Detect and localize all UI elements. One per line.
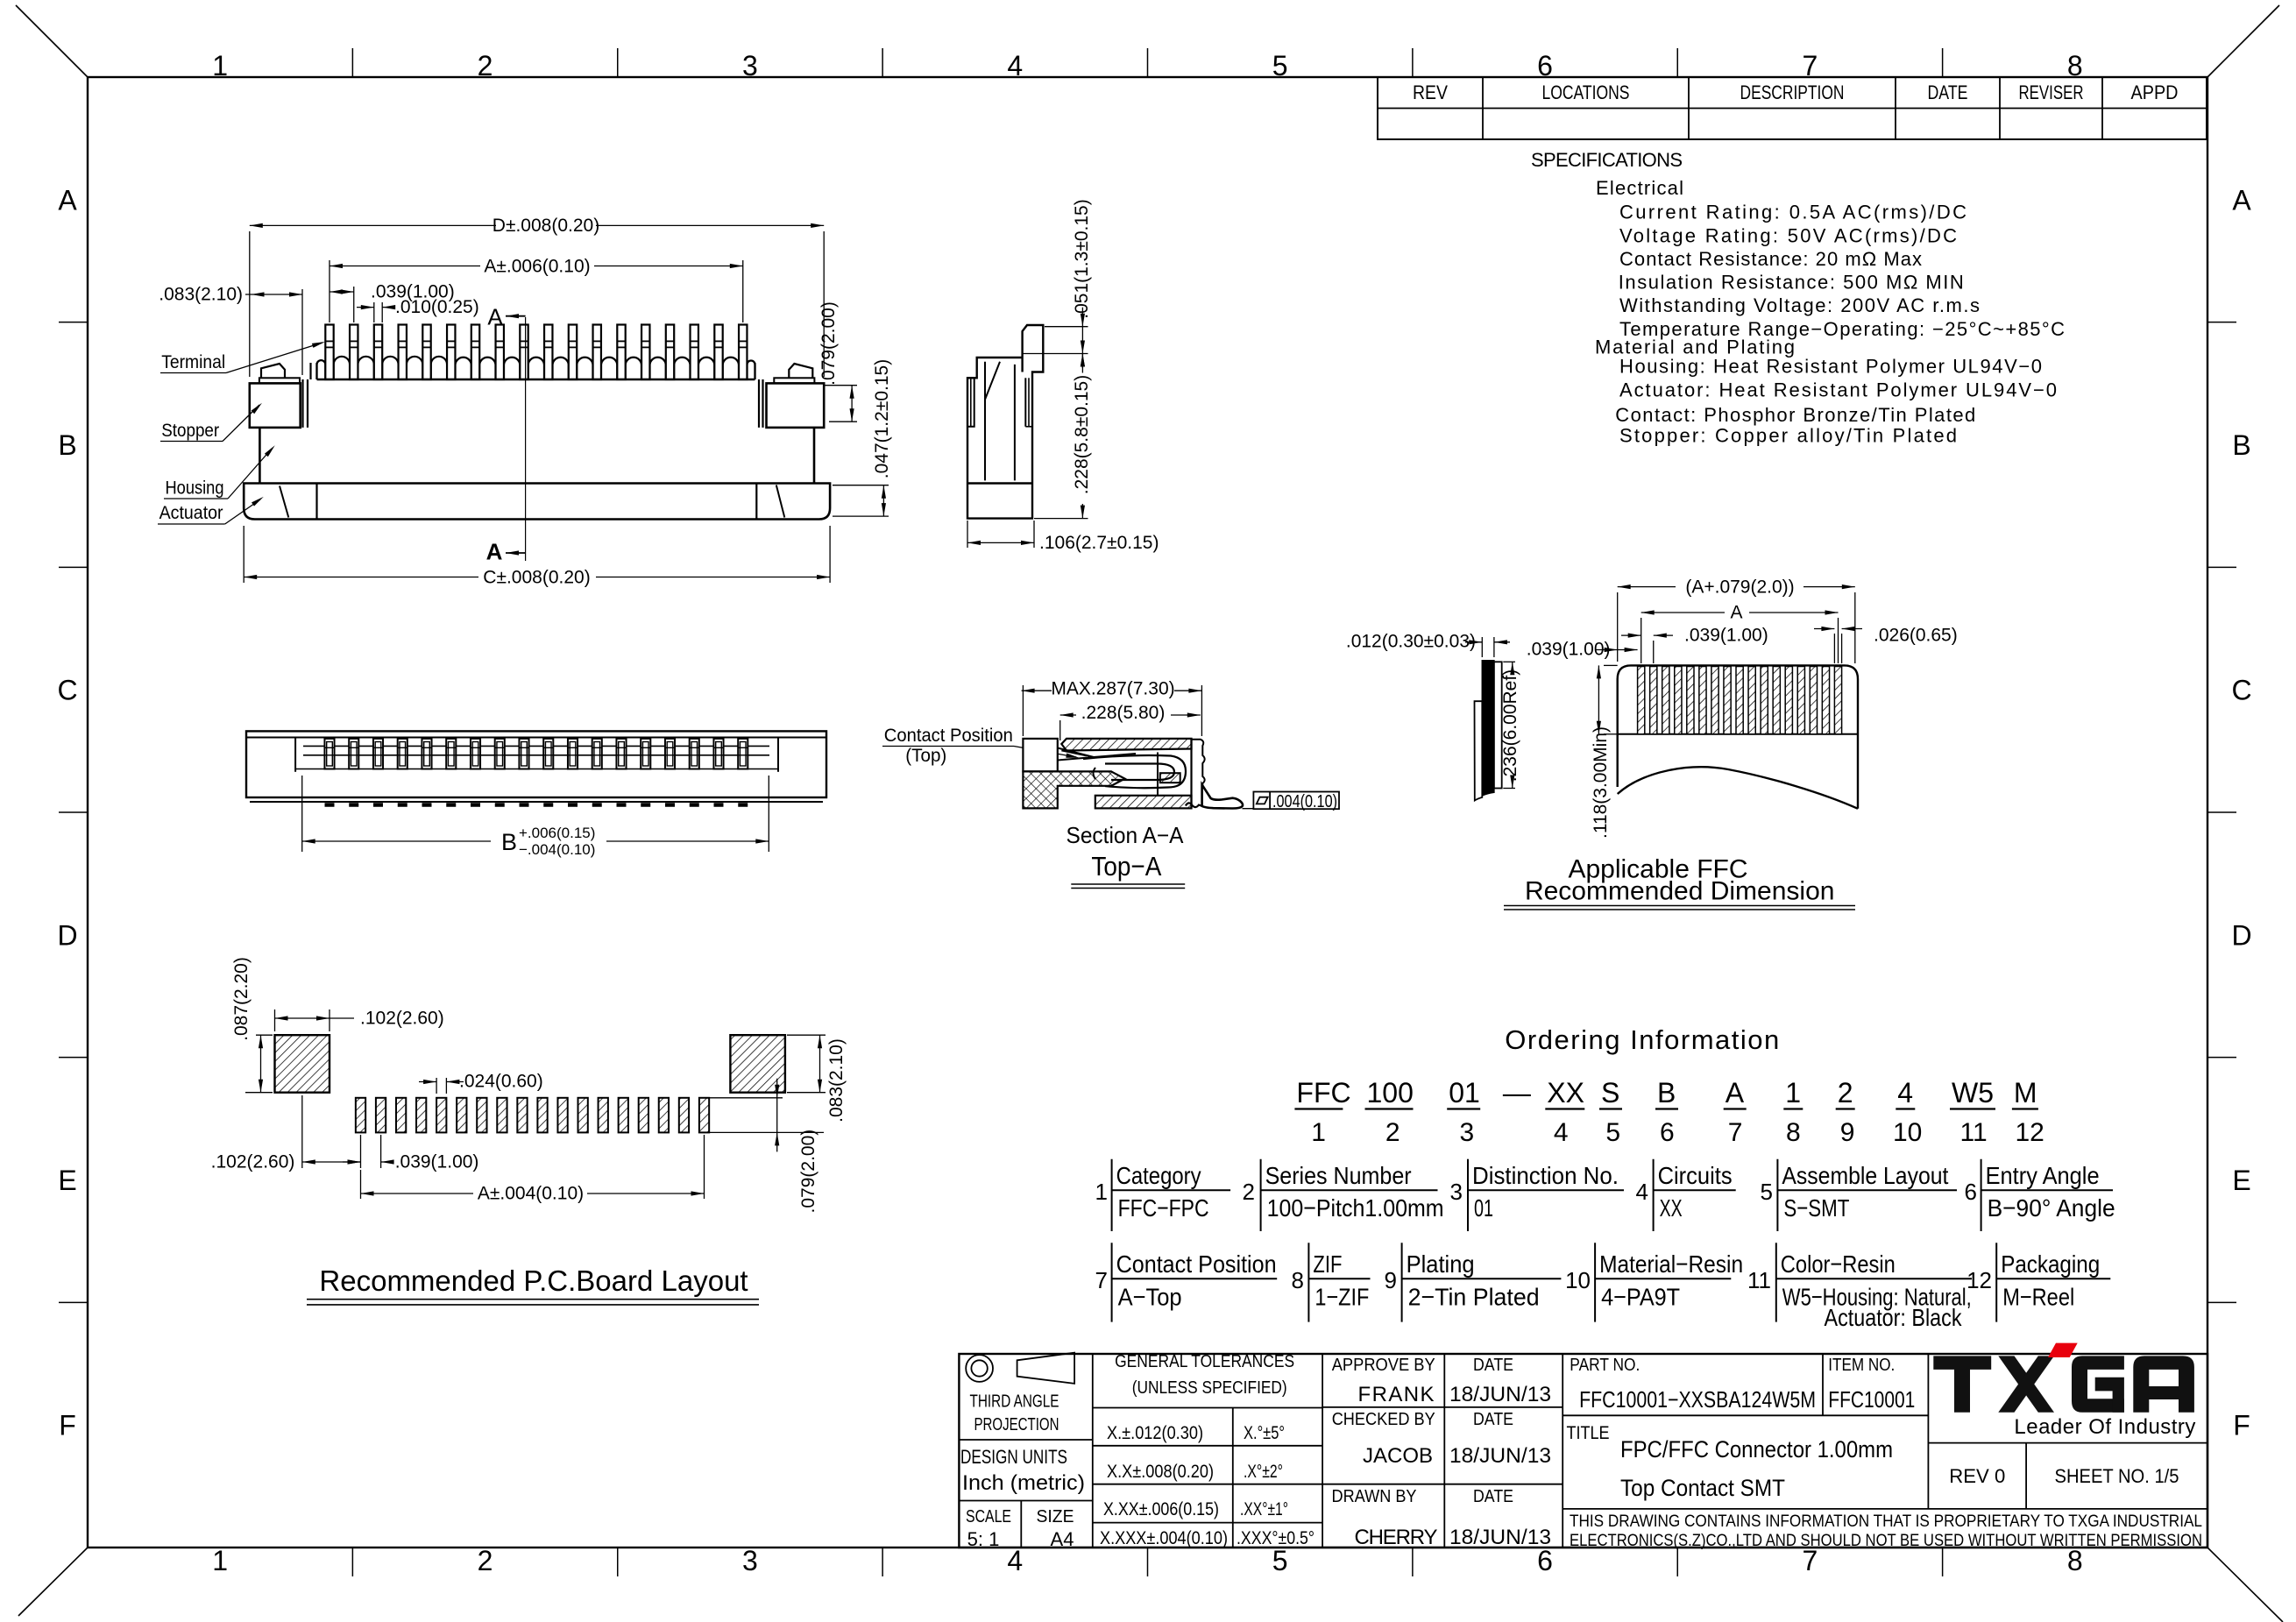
- svg-text:FFC−FPC: FFC−FPC: [1118, 1194, 1209, 1222]
- svg-text:ZIF: ZIF: [1313, 1250, 1342, 1278]
- svg-text:Series Number: Series Number: [1265, 1162, 1412, 1189]
- svg-text:SCALE: SCALE: [966, 1507, 1011, 1526]
- svg-text:F: F: [59, 1410, 76, 1441]
- svg-text:B: B: [501, 829, 517, 855]
- svg-text:C±.008(0.20): C±.008(0.20): [483, 568, 590, 588]
- svg-text:7: 7: [1095, 1267, 1108, 1293]
- svg-text:1: 1: [1311, 1118, 1326, 1147]
- svg-text:Category: Category: [1116, 1162, 1201, 1189]
- svg-text:18/JUN/13: 18/JUN/13: [1449, 1444, 1551, 1468]
- svg-text:B: B: [2232, 429, 2250, 461]
- svg-text:Entry Angle: Entry Angle: [1986, 1162, 2100, 1189]
- svg-text:1: 1: [212, 1545, 228, 1576]
- svg-text:4: 4: [1636, 1179, 1648, 1205]
- svg-text:.079(2.00): .079(2.00): [798, 1130, 818, 1214]
- svg-text:XX: XX: [1660, 1194, 1683, 1222]
- svg-text:8: 8: [1786, 1118, 1801, 1147]
- svg-text:—: —: [1503, 1077, 1531, 1108]
- svg-text:.083(2.10): .083(2.10): [826, 1038, 847, 1123]
- svg-text:ELECTRONICS(S.Z)CO.,LTD AND: ELECTRONICS(S.Z)CO.,LTD AND SHOULD NOT B…: [1570, 1531, 2202, 1550]
- svg-text:REVISER: REVISER: [2019, 81, 2084, 103]
- svg-text:18/JUN/13: 18/JUN/13: [1449, 1526, 1551, 1549]
- svg-text:A: A: [58, 184, 77, 216]
- svg-text:APPROVE BY: APPROVE BY: [1332, 1356, 1435, 1375]
- svg-text:PROJECTION: PROJECTION: [974, 1415, 1059, 1434]
- svg-text:A: A: [1730, 603, 1742, 623]
- svg-text:X.±.012(0.30): X.±.012(0.30): [1107, 1423, 1203, 1443]
- svg-text:W5: W5: [1952, 1077, 1994, 1108]
- svg-text:Contact Position: Contact Position: [1116, 1250, 1277, 1278]
- svg-text:.102(2.60): .102(2.60): [360, 1009, 444, 1029]
- svg-text:Assemble Layout: Assemble Layout: [1782, 1162, 1948, 1189]
- svg-text:C: C: [57, 675, 77, 706]
- svg-text:A4: A4: [1051, 1528, 1074, 1550]
- svg-text:THIRD ANGLE: THIRD ANGLE: [970, 1392, 1059, 1412]
- svg-text:A: A: [486, 538, 503, 564]
- svg-text:M−Reel: M−Reel: [2002, 1284, 2074, 1311]
- svg-text:F: F: [2233, 1410, 2250, 1441]
- svg-text:Packaging: Packaging: [2001, 1250, 2100, 1278]
- svg-text:.024(0.60): .024(0.60): [459, 1072, 543, 1092]
- svg-text:Top−A: Top−A: [1091, 851, 1161, 882]
- svg-text:1: 1: [1785, 1077, 1801, 1108]
- svg-text:01: 01: [1449, 1077, 1480, 1108]
- svg-text:Material−Resin: Material−Resin: [1599, 1250, 1743, 1278]
- svg-text:5: 5: [1761, 1179, 1773, 1205]
- svg-text:Distinction No.: Distinction No.: [1472, 1162, 1619, 1189]
- svg-text:.051(1.3±0.15): .051(1.3±0.15): [1072, 199, 1092, 318]
- svg-text:9: 9: [1840, 1118, 1855, 1147]
- svg-text:TITLE: TITLE: [1567, 1423, 1610, 1443]
- svg-text:FRANK: FRANK: [1358, 1383, 1435, 1406]
- svg-text:B−90° Angle: B−90° Angle: [1988, 1194, 2115, 1222]
- svg-text:A±.006(0.10): A±.006(0.10): [484, 257, 590, 277]
- svg-text:.010(0.25): .010(0.25): [395, 297, 479, 317]
- svg-text:REV 0: REV 0: [1949, 1465, 2005, 1487]
- svg-text:THIS DRAWING CONTAINS INFOR: THIS DRAWING CONTAINS INFORMATION THAT I…: [1570, 1512, 2202, 1531]
- svg-text:2: 2: [478, 1545, 493, 1576]
- svg-text:Ordering Information: Ordering Information: [1505, 1024, 1779, 1055]
- svg-text:Insulation Resistance: 500 M: Insulation Resistance: 500 MΩ MIN: [1619, 271, 1964, 293]
- svg-text:B: B: [1657, 1077, 1676, 1108]
- svg-text:DESCRIPTION: DESCRIPTION: [1740, 81, 1845, 103]
- svg-text:2: 2: [478, 50, 493, 81]
- svg-text:SHEET NO. 1/5: SHEET NO. 1/5: [2055, 1465, 2179, 1487]
- svg-text:Contact Resistance: 20 mΩ M: Contact Resistance: 20 mΩ Max: [1619, 248, 1922, 270]
- svg-text:1: 1: [212, 50, 228, 81]
- svg-text:1−ZIF: 1−ZIF: [1315, 1284, 1369, 1311]
- svg-text:Contact Position: Contact Position: [884, 726, 1013, 746]
- svg-text:DATE: DATE: [1473, 1487, 1513, 1506]
- svg-text:PART NO.: PART NO.: [1570, 1356, 1640, 1375]
- svg-text:Section A−A: Section A−A: [1067, 822, 1185, 848]
- svg-text:A: A: [2232, 184, 2251, 216]
- svg-text:S−SMT: S−SMT: [1783, 1194, 1849, 1222]
- svg-text:Voltage Rating: 50V AC(rms)/: Voltage Rating: 50V AC(rms)/DC: [1619, 224, 1957, 246]
- svg-text:3: 3: [742, 50, 758, 81]
- svg-text:6: 6: [1965, 1179, 1977, 1205]
- svg-text:.236(6.00Ref): .236(6.00Ref): [1500, 669, 1520, 782]
- svg-text:D±.008(0.20): D±.008(0.20): [493, 216, 599, 236]
- svg-text:3: 3: [1450, 1179, 1463, 1205]
- svg-text:A: A: [487, 304, 503, 330]
- svg-text:12: 12: [1966, 1267, 1992, 1293]
- svg-text:DATE: DATE: [1473, 1410, 1513, 1429]
- svg-text:B: B: [58, 429, 76, 461]
- svg-text:Color−Resin: Color−Resin: [1781, 1250, 1896, 1278]
- svg-text:FFC: FFC: [1296, 1077, 1350, 1108]
- svg-text:X.XXX±.004(0.10): X.XXX±.004(0.10): [1100, 1528, 1228, 1548]
- svg-text:Withstanding Voltage: 200V A: Withstanding Voltage: 200V AC r.m.s: [1619, 294, 1980, 316]
- svg-text:10: 10: [1893, 1118, 1922, 1147]
- svg-text:4: 4: [1897, 1077, 1913, 1108]
- svg-text:.102(2.60): .102(2.60): [211, 1152, 295, 1172]
- svg-text:Inch (metric): Inch (metric): [962, 1471, 1085, 1495]
- svg-text:+.006(0.15): +.006(0.15): [519, 825, 595, 841]
- svg-text:Leader Of Industry: Leader Of Industry: [2014, 1415, 2195, 1439]
- svg-text:SIZE: SIZE: [1037, 1507, 1074, 1526]
- svg-text:MAX.287(7.30): MAX.287(7.30): [1051, 679, 1174, 699]
- svg-text:2: 2: [1385, 1118, 1400, 1147]
- svg-text:A: A: [1726, 1077, 1745, 1108]
- svg-text:E: E: [2232, 1165, 2250, 1196]
- svg-text:.228(5.8±0.15): .228(5.8±0.15): [1072, 375, 1092, 494]
- svg-text:.047(1.2±0.15): .047(1.2±0.15): [872, 359, 892, 478]
- svg-text:Plating: Plating: [1407, 1250, 1475, 1278]
- svg-text:Circuits: Circuits: [1658, 1162, 1733, 1189]
- svg-text:Electrical: Electrical: [1596, 177, 1683, 199]
- svg-text:Terminal: Terminal: [161, 352, 225, 372]
- svg-text:(UNLESS SPECIFIED): (UNLESS SPECIFIED): [1132, 1378, 1287, 1398]
- svg-text:3: 3: [742, 1545, 758, 1576]
- svg-text:.118(3.00Min): .118(3.00Min): [1591, 726, 1611, 839]
- svg-text:Actuator: Heat Resistant Po: Actuator: Heat Resistant Polymer UL94V−0: [1619, 379, 2057, 400]
- svg-text:.X°±2°: .X°±2°: [1244, 1462, 1283, 1482]
- svg-text:.026(0.65): .026(0.65): [1874, 626, 1958, 646]
- svg-text:.012(0.30±0.03): .012(0.30±0.03): [1346, 632, 1476, 652]
- svg-text:1: 1: [1095, 1179, 1108, 1205]
- svg-text:REV: REV: [1413, 81, 1448, 103]
- svg-text:6: 6: [1537, 1545, 1553, 1576]
- svg-text:3: 3: [1459, 1118, 1474, 1147]
- svg-text:.087(2.20): .087(2.20): [231, 957, 252, 1041]
- svg-text:4−PA9T: 4−PA9T: [1601, 1284, 1680, 1311]
- svg-text:CHECKED BY: CHECKED BY: [1332, 1410, 1435, 1429]
- svg-text:DRAWN BY: DRAWN BY: [1332, 1487, 1417, 1506]
- svg-text:10: 10: [1565, 1267, 1591, 1293]
- svg-text:DATE: DATE: [1928, 81, 1968, 103]
- svg-text:X.XX±.006(0.15): X.XX±.006(0.15): [1103, 1499, 1219, 1519]
- svg-text:Actuator: Black: Actuator: Black: [1825, 1304, 1963, 1331]
- svg-text:JACOB: JACOB: [1363, 1444, 1433, 1468]
- svg-text:100−Pitch1.00mm: 100−Pitch1.00mm: [1267, 1194, 1444, 1222]
- svg-text:A±.004(0.10): A±.004(0.10): [478, 1184, 584, 1204]
- svg-text:S: S: [1601, 1077, 1619, 1108]
- svg-text:11: 11: [1747, 1267, 1771, 1293]
- svg-text:Actuator: Actuator: [159, 503, 223, 523]
- svg-text:FPC/FFC Connector 1.00mm: FPC/FFC Connector 1.00mm: [1620, 1436, 1893, 1463]
- svg-text:Stopper: Stopper: [161, 421, 219, 441]
- svg-text:Recommended P.C.Board Layout: Recommended P.C.Board Layout: [319, 1264, 748, 1297]
- svg-text:01: 01: [1474, 1194, 1493, 1222]
- svg-text:M: M: [2014, 1077, 2037, 1108]
- svg-text:Housing: Housing: [166, 478, 224, 499]
- svg-text:Recommended Dimension: Recommended Dimension: [1525, 877, 1835, 906]
- svg-text:DATE: DATE: [1473, 1356, 1513, 1375]
- svg-text:FFC10001: FFC10001: [1828, 1386, 1915, 1413]
- svg-text:A−Top: A−Top: [1118, 1284, 1182, 1311]
- svg-text:5: 5: [1605, 1118, 1620, 1147]
- svg-text:DESIGN UNITS: DESIGN UNITS: [960, 1446, 1067, 1468]
- svg-text:D: D: [57, 919, 77, 951]
- svg-text:CHERRY: CHERRY: [1355, 1526, 1438, 1549]
- svg-text:.228(5.80): .228(5.80): [1081, 703, 1166, 723]
- svg-text:SPECIFICATIONS: SPECIFICATIONS: [1531, 149, 1683, 171]
- svg-text:ITEM NO.: ITEM NO.: [1828, 1356, 1895, 1375]
- svg-text:12: 12: [2016, 1118, 2044, 1147]
- svg-text:X.X±.008(0.20): X.X±.008(0.20): [1107, 1462, 1214, 1482]
- svg-text:C: C: [2231, 675, 2251, 706]
- svg-text:5: 1: 5: 1: [967, 1528, 1000, 1550]
- svg-text:XX: XX: [1547, 1077, 1584, 1108]
- svg-text:.083(2.10): .083(2.10): [159, 285, 243, 305]
- svg-text:5: 5: [1272, 50, 1288, 81]
- svg-text:Housing: Heat Resistant Poly: Housing: Heat Resistant Polymer UL94V−0: [1619, 356, 2042, 378]
- svg-text:LOCATIONS: LOCATIONS: [1542, 81, 1630, 103]
- svg-text:4: 4: [1007, 50, 1023, 81]
- svg-text:.039(1.00): .039(1.00): [1684, 626, 1768, 646]
- svg-text:−.004(0.10): −.004(0.10): [519, 841, 595, 858]
- svg-text:GENERAL TOLERANCES: GENERAL TOLERANCES: [1115, 1352, 1294, 1371]
- svg-text:X.°±5°: X.°±5°: [1244, 1423, 1285, 1443]
- svg-text:.XX°±1°: .XX°±1°: [1240, 1499, 1288, 1519]
- svg-text:8: 8: [1292, 1267, 1304, 1293]
- svg-text:2: 2: [1243, 1179, 1255, 1205]
- svg-text:FFC10001−XXSBA124W5M: FFC10001−XXSBA124W5M: [1579, 1386, 1816, 1413]
- svg-text:.XXX°±0.5°: .XXX°±0.5°: [1237, 1528, 1315, 1548]
- svg-text:2−Tin Plated: 2−Tin Plated: [1408, 1284, 1540, 1311]
- svg-text:7: 7: [1728, 1118, 1743, 1147]
- svg-text:9: 9: [1385, 1267, 1397, 1293]
- svg-text:Current Rating: 0.5A AC(rms): Current Rating: 0.5A AC(rms)/DC: [1619, 201, 1966, 223]
- svg-text:5: 5: [1272, 1545, 1288, 1576]
- svg-text:APPD: APPD: [2131, 81, 2179, 103]
- svg-text:4: 4: [1554, 1118, 1569, 1147]
- svg-text:2: 2: [1838, 1077, 1853, 1108]
- svg-text:4: 4: [1007, 1545, 1023, 1576]
- svg-text:11: 11: [1960, 1118, 1988, 1147]
- svg-text:D: D: [2231, 919, 2251, 951]
- svg-text:E: E: [58, 1165, 76, 1196]
- svg-text:.039(1.00): .039(1.00): [395, 1152, 479, 1172]
- svg-text:Top Contact SMT: Top Contact SMT: [1620, 1475, 1785, 1501]
- svg-text:18/JUN/13: 18/JUN/13: [1449, 1383, 1551, 1406]
- svg-text:.079(2.00): .079(2.00): [818, 301, 839, 386]
- svg-text:.106(2.7±0.15): .106(2.7±0.15): [1039, 533, 1159, 553]
- svg-text:(Top): (Top): [905, 746, 946, 766]
- svg-text:(A+.079(2.0)): (A+.079(2.0)): [1685, 577, 1794, 598]
- svg-text:100: 100: [1367, 1077, 1414, 1108]
- svg-text:.004(0.10): .004(0.10): [1272, 792, 1337, 811]
- svg-text:6: 6: [1660, 1118, 1675, 1147]
